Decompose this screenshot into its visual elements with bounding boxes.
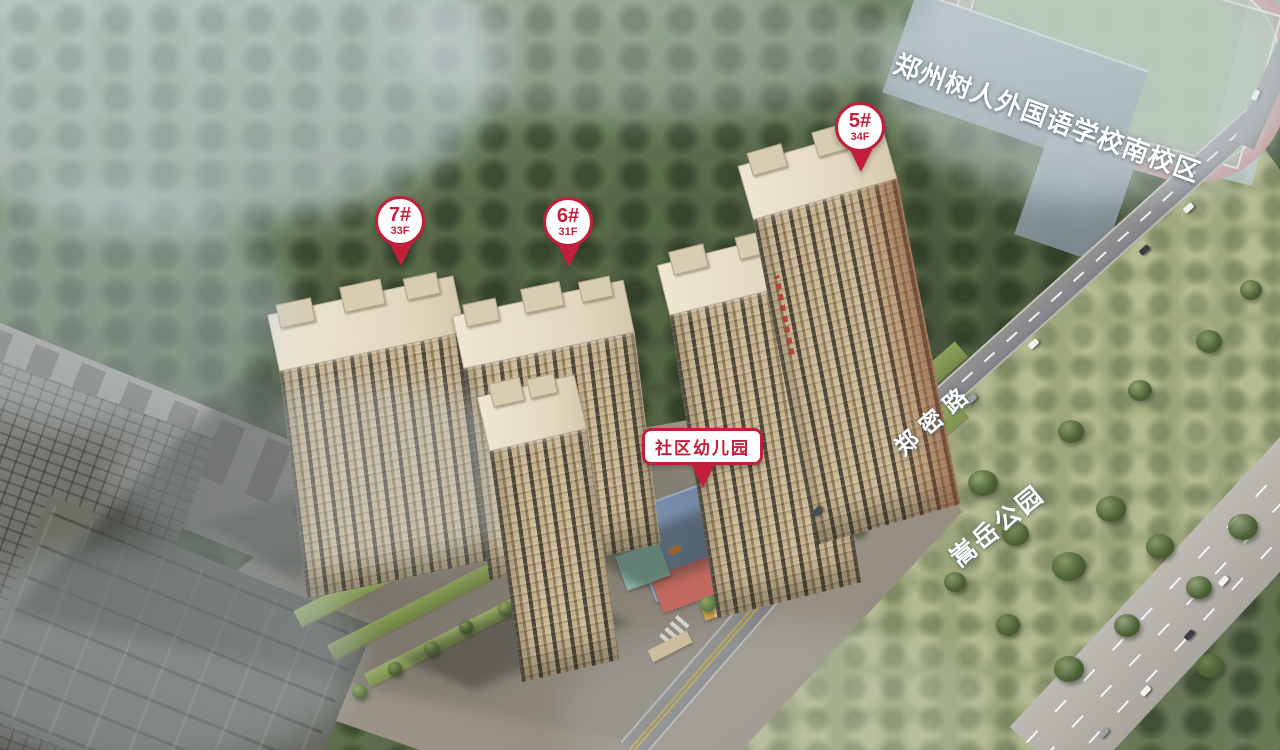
park-tree xyxy=(1114,614,1140,637)
aerial-render: 7# 33F 6# 31F 5# 34F 社区幼儿园 郑州树人外国语学校南校区 … xyxy=(0,0,1280,750)
tower-7-facade xyxy=(279,332,493,599)
park-tree xyxy=(1096,496,1126,522)
marker-pin-building-7: 7# 33F xyxy=(375,196,427,246)
facade-logo-text xyxy=(774,275,794,355)
park-tree xyxy=(1240,280,1262,300)
park-tree xyxy=(1128,380,1152,401)
kindergarten-sign-text: 社区幼儿园 xyxy=(642,428,763,465)
park-tree xyxy=(1052,552,1086,581)
kindergarten-sign: 社区幼儿园 xyxy=(642,428,763,465)
park-tree xyxy=(1146,534,1174,559)
pin-circle: 6# 31F xyxy=(543,197,593,247)
street-tree xyxy=(352,684,367,699)
park-tree xyxy=(1058,420,1084,443)
building-floors: 34F xyxy=(851,131,870,143)
park-tree xyxy=(1196,654,1224,678)
park-tree xyxy=(1186,576,1212,599)
park-tree xyxy=(1054,656,1084,682)
park-tree xyxy=(996,614,1020,636)
pin-circle: 7# 33F xyxy=(375,196,425,246)
building-number: 7# xyxy=(389,206,411,225)
building-number: 6# xyxy=(557,207,579,226)
street-tree xyxy=(388,662,402,676)
park-tree xyxy=(1228,514,1258,540)
building-floors: 33F xyxy=(391,225,410,237)
building-floors: 31F xyxy=(559,226,578,238)
marker-pin-building-5: 5# 34F xyxy=(835,102,887,152)
building-number: 5# xyxy=(849,112,871,131)
park-tree xyxy=(1196,330,1222,353)
pin-circle: 5# 34F xyxy=(835,102,885,152)
marker-pin-building-6: 6# 31F xyxy=(543,197,595,247)
park-tree xyxy=(944,572,966,592)
